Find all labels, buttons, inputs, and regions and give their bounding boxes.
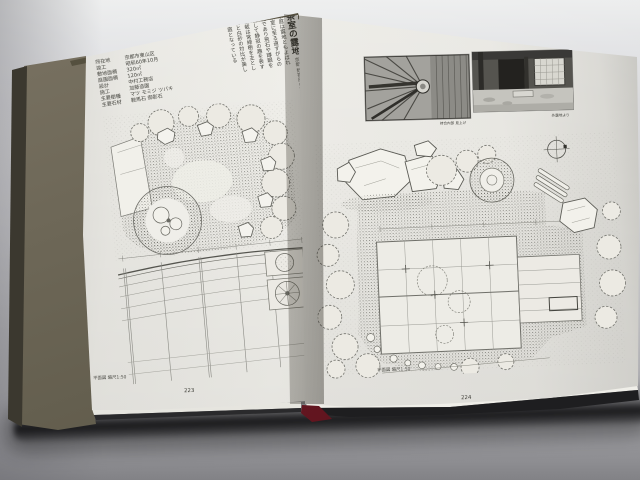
right-plan-caption: 平面図 縮尺1:50 [377, 366, 410, 373]
photo-caption: 外露地より [552, 113, 570, 118]
left-page-number: 223 [184, 388, 194, 394]
spec-table: 所在地京都市東山区 竣工昭和60年10月 敷地面積320㎡ 庭園面積120㎡ 設… [95, 43, 219, 109]
right-garden-plan-drawing [310, 126, 632, 379]
photo-ceiling-view [364, 54, 471, 121]
left-plan-caption: 平面図 縮尺1:50 [93, 374, 126, 381]
photo-strip: 待合内部 見上げ 外露地より [364, 49, 578, 131]
book-photo-scene: 所在地京都市東山区 竣工昭和60年10月 敷地面積320㎡ 庭園面積120㎡ 設… [0, 0, 640, 480]
photo-caption: 待合内部 見上げ [440, 120, 466, 126]
right-page-number: 224 [461, 395, 471, 401]
photo-courtyard-view [472, 50, 574, 113]
